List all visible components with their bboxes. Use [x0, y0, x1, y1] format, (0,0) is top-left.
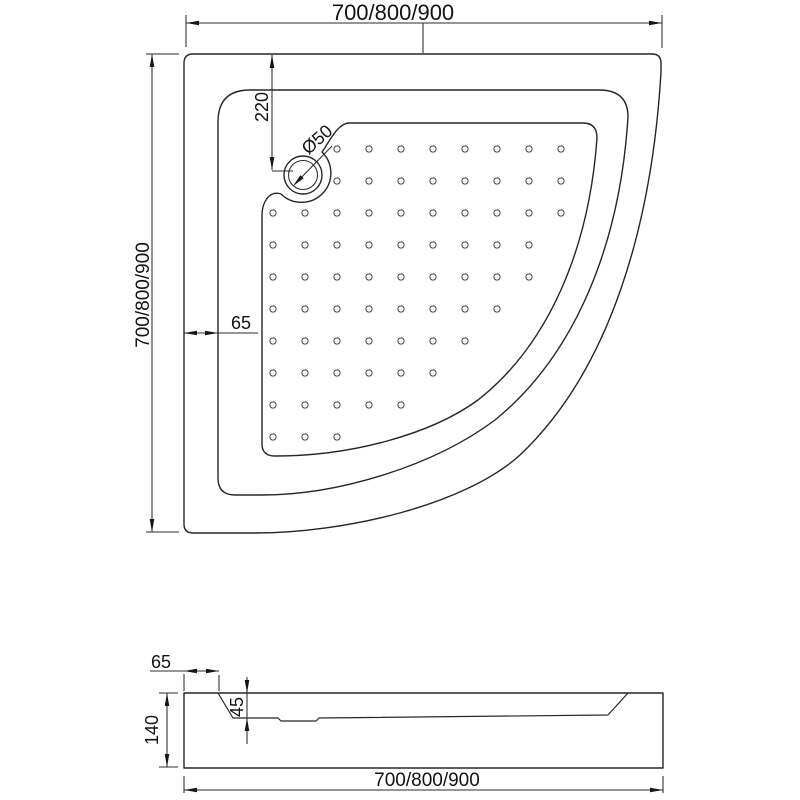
- anti-slip-dot: [302, 370, 308, 376]
- anti-slip-dot: [526, 210, 532, 216]
- tray-outlines: [184, 54, 661, 533]
- anti-slip-dot: [366, 146, 372, 152]
- side-depth-dimension: 45: [227, 677, 249, 744]
- arrowhead: [270, 157, 275, 170]
- anti-slip-dot: [398, 370, 404, 376]
- anti-slip-dot: [462, 306, 468, 312]
- anti-slip-dot: [366, 338, 372, 344]
- anti-slip-dot: [430, 178, 436, 184]
- top-width-dimension: 700/800/900: [186, 0, 662, 53]
- anti-slip-dot: [398, 178, 404, 184]
- drain-diameter-label: Ø50: [298, 121, 337, 159]
- arrowhead: [650, 788, 663, 793]
- anti-slip-dot: [494, 146, 500, 152]
- anti-slip-dot: [462, 146, 468, 152]
- anti-slip-dot: [398, 274, 404, 280]
- anti-slip-dot: [526, 146, 532, 152]
- shower-tray-drawing: 700/800/900 700/800/900 220 Ø50 65: [0, 0, 800, 800]
- arrowhead: [184, 788, 197, 793]
- anti-slip-dot: [430, 338, 436, 344]
- rim-width-label: 65: [231, 313, 251, 333]
- anti-slip-dot: [398, 402, 404, 408]
- anti-slip-dot: [270, 338, 276, 344]
- left-height-dimension: 700/800/900: [133, 54, 179, 532]
- anti-slip-dot: [462, 210, 468, 216]
- anti-slip-dot: [334, 146, 340, 152]
- anti-slip-dot: [302, 434, 308, 440]
- side-depth-label: 45: [227, 697, 247, 717]
- anti-slip-dot: [494, 242, 500, 248]
- arrowhead: [206, 669, 219, 674]
- anti-slip-dot: [334, 370, 340, 376]
- anti-slip-dot: [558, 178, 564, 184]
- anti-slip-dot: [430, 146, 436, 152]
- anti-slip-dot: [270, 210, 276, 216]
- anti-slip-dot: [366, 242, 372, 248]
- anti-slip-dot: [398, 338, 404, 344]
- anti-slip-dot: [334, 274, 340, 280]
- anti-slip-dot: [334, 242, 340, 248]
- anti-slip-dot: [398, 210, 404, 216]
- drain-offset-label: 220: [252, 92, 272, 122]
- side-rim-width-label: 65: [151, 652, 171, 672]
- anti-slip-dot: [494, 178, 500, 184]
- anti-slip-dot: [558, 210, 564, 216]
- arrowhead: [205, 331, 218, 336]
- anti-slip-dot: [270, 402, 276, 408]
- anti-slip-dot: [302, 402, 308, 408]
- anti-slip-dot: [302, 242, 308, 248]
- arrowhead: [150, 54, 155, 67]
- anti-slip-dot: [270, 242, 276, 248]
- arrowhead: [165, 693, 170, 706]
- side-rim-dimension: 65: [150, 652, 219, 691]
- side-width-dimension: 700/800/900: [184, 770, 663, 793]
- arrowhead: [649, 21, 662, 26]
- anti-slip-dot: [366, 210, 372, 216]
- anti-slip-dot: [302, 306, 308, 312]
- anti-slip-dot: [334, 434, 340, 440]
- anti-slip-dot: [270, 434, 276, 440]
- anti-slip-dot: [430, 370, 436, 376]
- tray-basin-outline: [262, 123, 597, 456]
- anti-slip-dot: [334, 338, 340, 344]
- arrowhead: [270, 55, 275, 68]
- rim-width-dimension: 65: [184, 313, 258, 335]
- anti-slip-dot: [366, 306, 372, 312]
- anti-slip-dot: [398, 306, 404, 312]
- left-height-label: 700/800/900: [133, 242, 154, 348]
- side-profile-body: [184, 693, 663, 768]
- anti-slip-dot: [398, 146, 404, 152]
- anti-slip-dot: [558, 146, 564, 152]
- anti-slip-dot: [366, 274, 372, 280]
- anti-slip-dot: [366, 402, 372, 408]
- anti-slip-dot: [526, 242, 532, 248]
- side-height-dimension: 140: [142, 693, 178, 767]
- anti-slip-dot: [430, 274, 436, 280]
- anti-slip-dot: [366, 178, 372, 184]
- anti-slip-dot: [462, 178, 468, 184]
- anti-slip-dot: [334, 402, 340, 408]
- side-view: 65 45 140 700/800/900: [142, 652, 663, 793]
- anti-slip-dot: [398, 242, 404, 248]
- anti-slip-dot: [430, 210, 436, 216]
- anti-slip-dot: [302, 210, 308, 216]
- anti-slip-dot: [302, 274, 308, 280]
- arrowhead: [184, 669, 197, 674]
- anti-slip-dot: [430, 242, 436, 248]
- side-width-label: 700/800/900: [374, 770, 480, 791]
- anti-slip-dot: [334, 210, 340, 216]
- anti-slip-dot: [334, 306, 340, 312]
- arrowhead: [184, 331, 197, 336]
- anti-slip-dot: [462, 274, 468, 280]
- anti-slip-dot: [526, 178, 532, 184]
- anti-slip-dot: [270, 274, 276, 280]
- anti-slip-dot: [302, 338, 308, 344]
- top-width-label: 700/800/900: [332, 0, 454, 25]
- drain-offset-dimension: 220: [252, 55, 293, 171]
- anti-slip-dot: [462, 242, 468, 248]
- arrowhead: [245, 680, 250, 693]
- anti-slip-dot: [494, 306, 500, 312]
- tray-rim-outline: [218, 90, 628, 495]
- anti-slip-dot: [462, 338, 468, 344]
- anti-slip-dot: [366, 370, 372, 376]
- anti-slip-dot: [334, 178, 340, 184]
- technical-drawing-canvas: 700/800/900 700/800/900 220 Ø50 65: [0, 0, 800, 800]
- anti-slip-dot: [494, 274, 500, 280]
- arrowhead: [165, 754, 170, 767]
- anti-slip-dot: [270, 370, 276, 376]
- anti-slip-dot: [494, 210, 500, 216]
- anti-slip-dot: [270, 306, 276, 312]
- anti-slip-dot: [526, 274, 532, 280]
- side-basin-profile: [218, 693, 628, 721]
- arrowhead: [150, 519, 155, 532]
- side-height-label: 140: [142, 715, 162, 745]
- top-view: 700/800/900 700/800/900 220 Ø50 65: [133, 0, 662, 533]
- arrowhead: [245, 718, 250, 731]
- arrowhead: [186, 21, 199, 26]
- anti-slip-dot: [430, 306, 436, 312]
